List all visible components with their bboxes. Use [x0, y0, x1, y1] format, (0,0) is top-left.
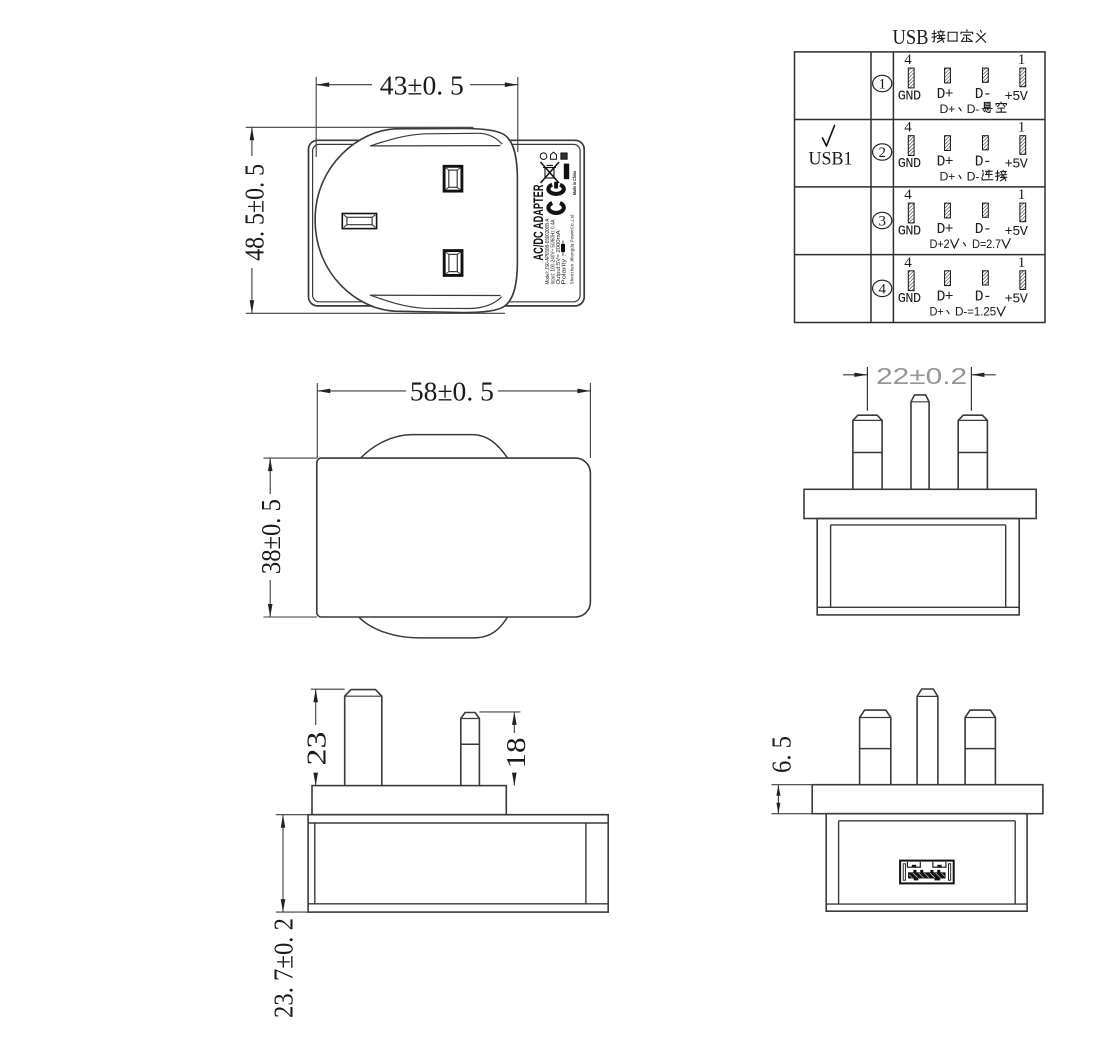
svg-text:AC/DC ADAPTER: AC/DC ADAPTER	[530, 185, 546, 261]
svg-text:1: 1	[1018, 120, 1026, 136]
svg-text:D=2.7: D=2.7	[972, 237, 1001, 251]
svg-text:23: 23	[301, 732, 331, 766]
svg-text:1: 1	[1018, 187, 1026, 203]
svg-text:D-=1.25: D-=1.25	[955, 305, 996, 319]
svg-text:4: 4	[904, 255, 912, 271]
svg-text:GND: GND	[898, 157, 921, 172]
svg-text:D+2: D+2	[930, 237, 950, 251]
svg-text:38±0. 5: 38±0. 5	[256, 499, 286, 574]
svg-text:D-: D-	[975, 155, 991, 171]
svg-text:58±0. 5: 58±0. 5	[410, 377, 494, 407]
svg-text:23. 7±0. 2: 23. 7±0. 2	[269, 918, 299, 1018]
svg-text:D-: D-	[967, 170, 980, 184]
svg-text:+5V: +5V	[1005, 293, 1029, 308]
svg-text:Made in China: Made in China	[572, 171, 578, 195]
svg-text:22±0.2: 22±0.2	[876, 363, 967, 389]
svg-text:3: 3	[878, 214, 886, 230]
svg-text:18: 18	[501, 738, 531, 769]
svg-text:GND: GND	[898, 224, 921, 239]
svg-text:6. 5: 6. 5	[767, 736, 797, 773]
svg-text:43±0. 5: 43±0. 5	[380, 70, 464, 100]
svg-text:D-: D-	[975, 290, 991, 306]
svg-text:+5V: +5V	[1005, 225, 1029, 240]
svg-text:D+: D+	[937, 290, 953, 306]
svg-text:D+: D+	[940, 170, 956, 184]
svg-text:USB1: USB1	[809, 149, 853, 170]
svg-text:D-: D-	[975, 87, 991, 103]
svg-text:Shenzhen Jihongda PowerCo.,Ltd: Shenzhen Jihongda PowerCo.,Ltd	[570, 214, 575, 284]
svg-text:D+: D+	[937, 155, 953, 171]
svg-text:4: 4	[904, 120, 912, 136]
svg-text:D-: D-	[975, 222, 991, 238]
svg-text:1: 1	[1018, 52, 1026, 68]
svg-text:4: 4	[878, 282, 886, 298]
svg-text:48. 5±0. 5: 48. 5±0. 5	[240, 164, 270, 261]
svg-text:+5V: +5V	[1005, 90, 1029, 105]
svg-text:1: 1	[878, 77, 886, 93]
svg-text:4: 4	[904, 52, 912, 68]
svg-text:GND: GND	[898, 292, 921, 307]
svg-text:D-: D-	[967, 102, 980, 116]
svg-text:D+: D+	[930, 305, 944, 319]
svg-text:+5V: +5V	[1005, 158, 1029, 173]
svg-text:2: 2	[878, 145, 886, 161]
svg-text:Polarity :: Polarity :	[562, 255, 568, 285]
svg-text:D+: D+	[940, 102, 956, 116]
svg-text:D+: D+	[937, 87, 953, 103]
svg-text:1: 1	[1018, 255, 1026, 271]
svg-text:GND: GND	[898, 89, 921, 104]
svg-text:USB: USB	[893, 25, 929, 49]
svg-text:D+: D+	[937, 222, 953, 238]
svg-text:4: 4	[904, 187, 912, 203]
